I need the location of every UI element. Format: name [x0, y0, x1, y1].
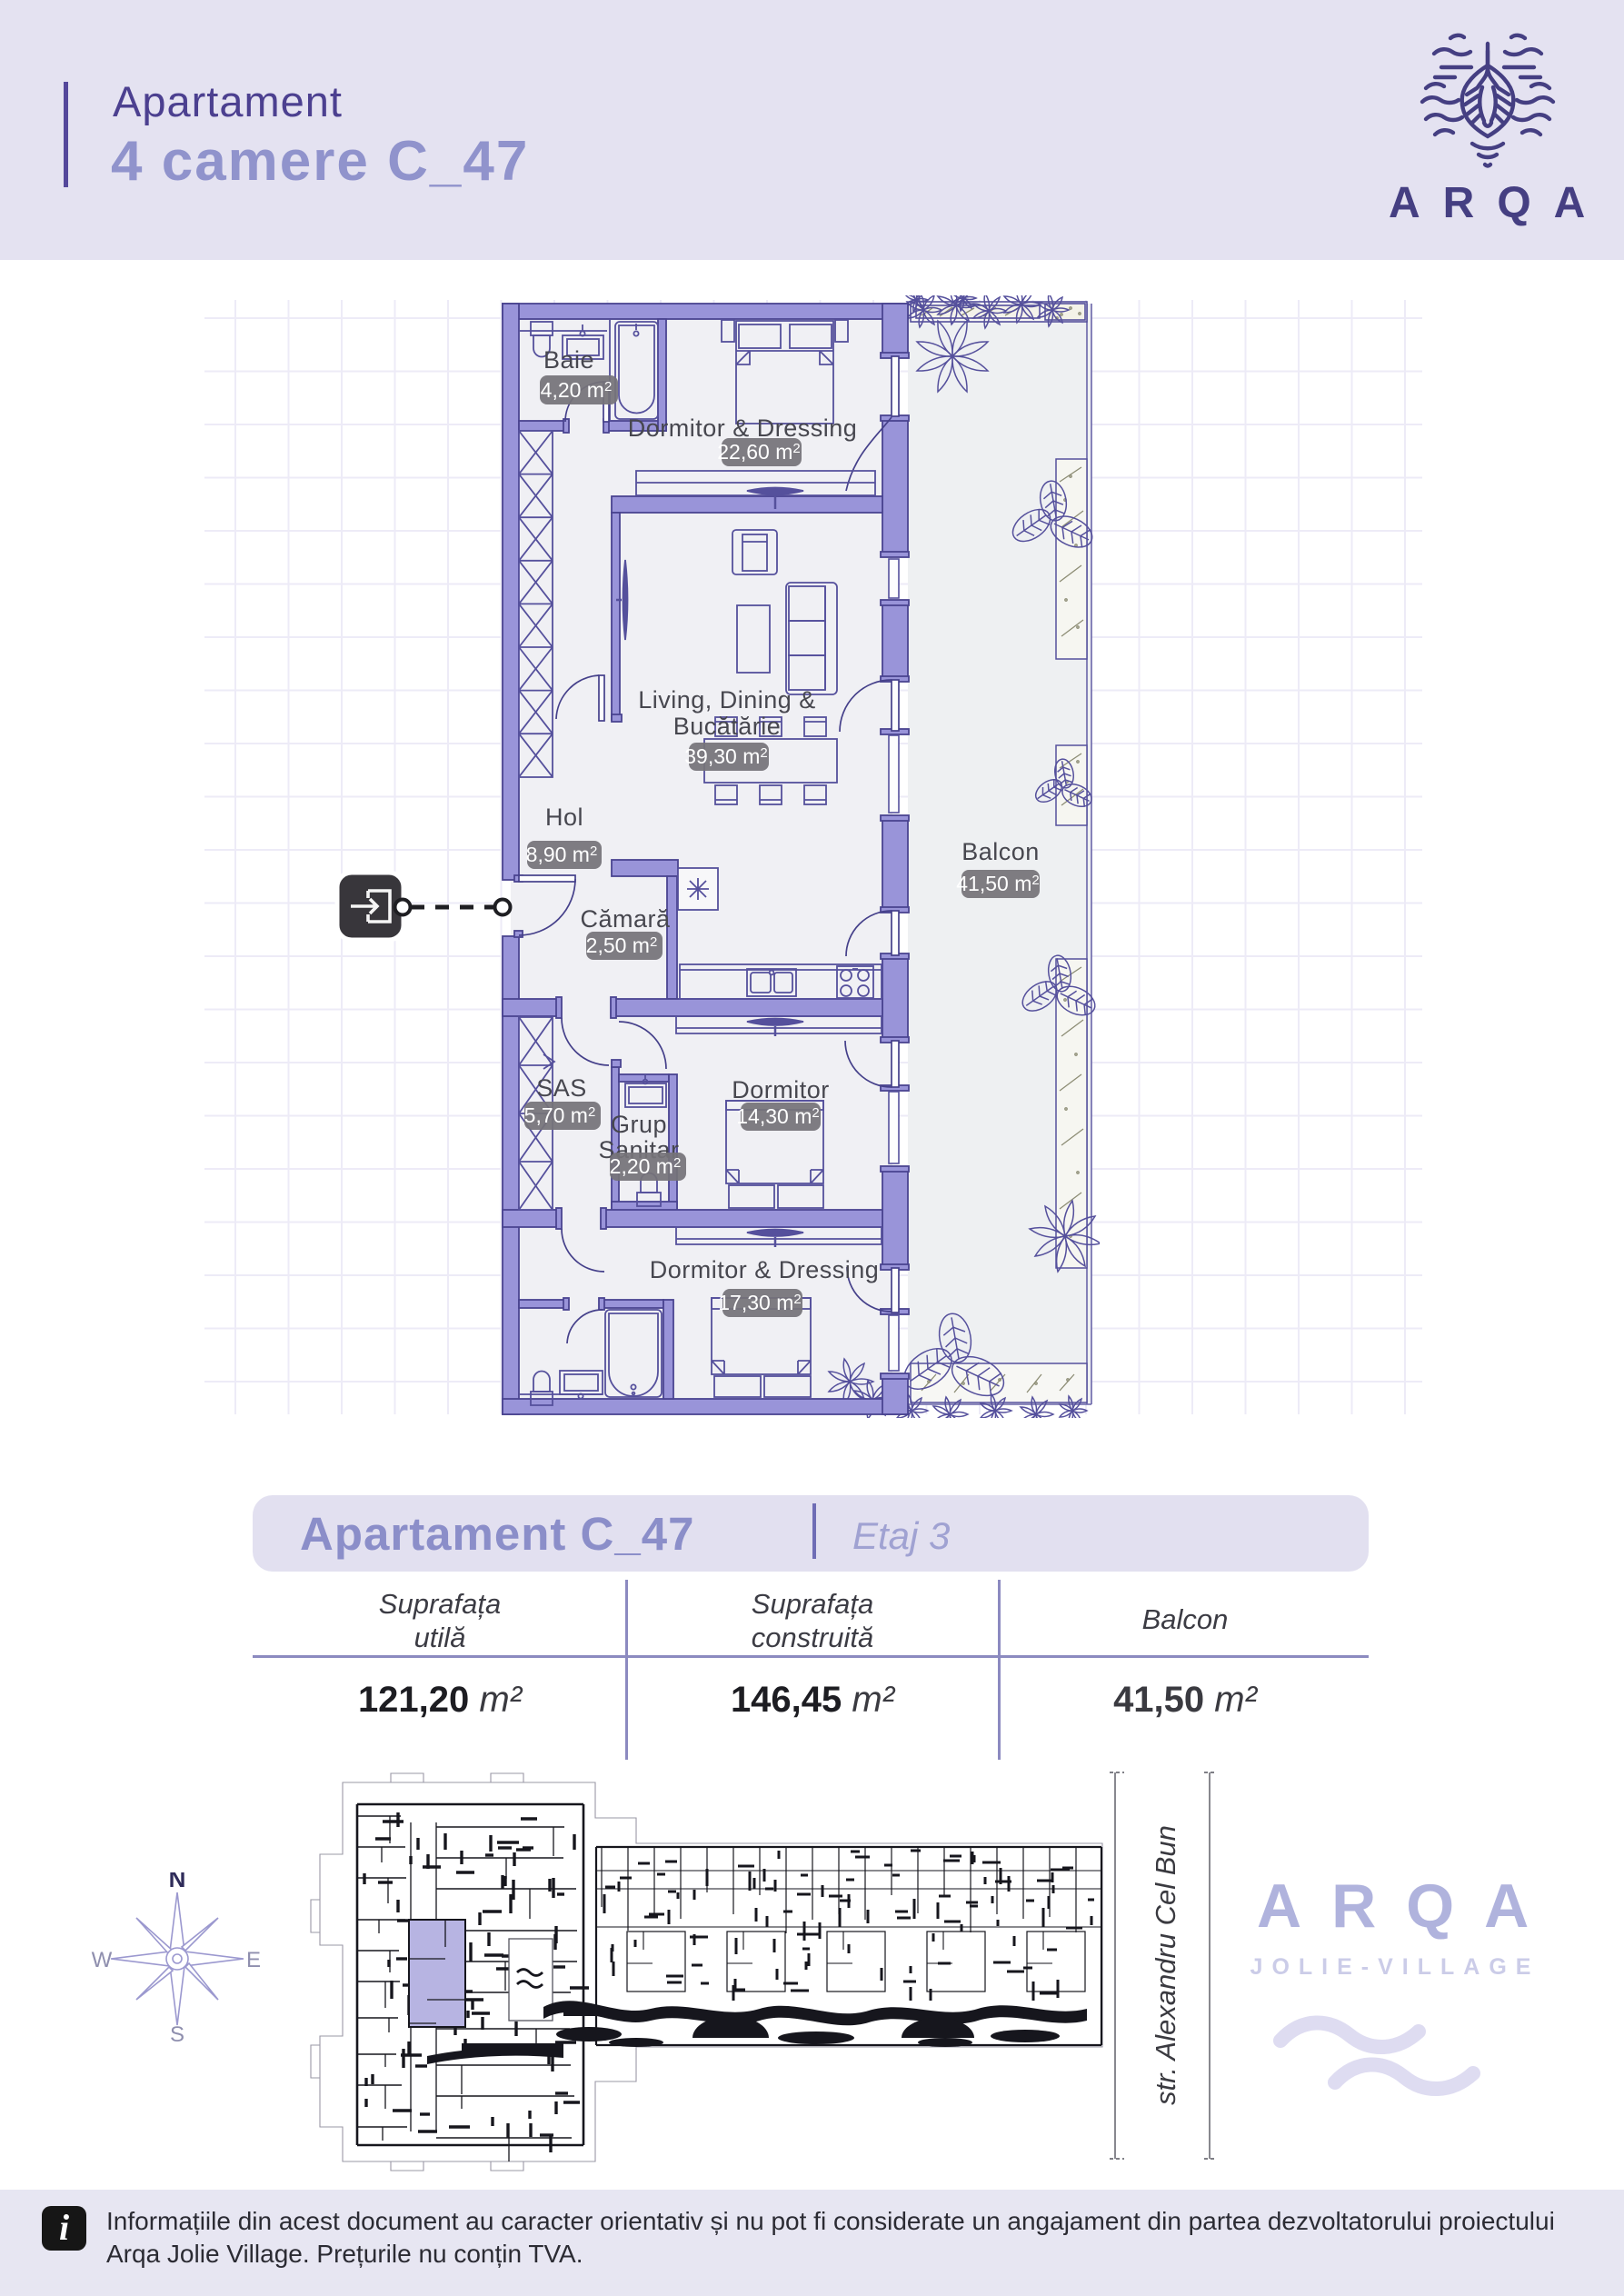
- svg-text:W: W: [92, 1948, 113, 1972]
- svg-text:2,20 m2: 2,20 m2: [610, 1154, 682, 1178]
- svg-text:SAS: SAS: [536, 1074, 587, 1102]
- svg-text:8,90 m2: 8,90 m2: [526, 843, 598, 866]
- svg-text:Grup: Grup: [611, 1111, 667, 1138]
- svg-text:Bucătărie: Bucătărie: [673, 713, 782, 740]
- svg-text:14,30 m2: 14,30 m2: [736, 1104, 819, 1128]
- svg-text:E: E: [246, 1948, 261, 1972]
- svg-text:Dormitor & Dressing: Dormitor & Dressing: [650, 1256, 880, 1283]
- svg-text:Dormitor & Dressing: Dormitor & Dressing: [628, 414, 858, 442]
- svg-text:39,30 m2: 39,30 m2: [684, 744, 767, 768]
- svg-text:Cămară: Cămară: [580, 905, 671, 933]
- svg-text:N: N: [169, 1872, 186, 1892]
- svg-text:Balcon: Balcon: [961, 838, 1040, 865]
- svg-text:Hol: Hol: [545, 804, 583, 831]
- svg-text:Dormitor: Dormitor: [732, 1076, 830, 1103]
- svg-text:S: S: [170, 2022, 184, 2045]
- svg-text:5,70 m2: 5,70 m2: [524, 1103, 596, 1127]
- svg-text:Living, Dining &: Living, Dining &: [638, 686, 816, 714]
- svg-text:17,30 m2: 17,30 m2: [718, 1291, 801, 1314]
- svg-text:Baie: Baie: [543, 346, 594, 374]
- svg-text:41,50 m2: 41,50 m2: [956, 872, 1039, 895]
- svg-text:22,60 m2: 22,60 m2: [717, 440, 800, 464]
- svg-text:4,20 m2: 4,20 m2: [541, 378, 613, 402]
- svg-text:2,50 m2: 2,50 m2: [586, 933, 658, 957]
